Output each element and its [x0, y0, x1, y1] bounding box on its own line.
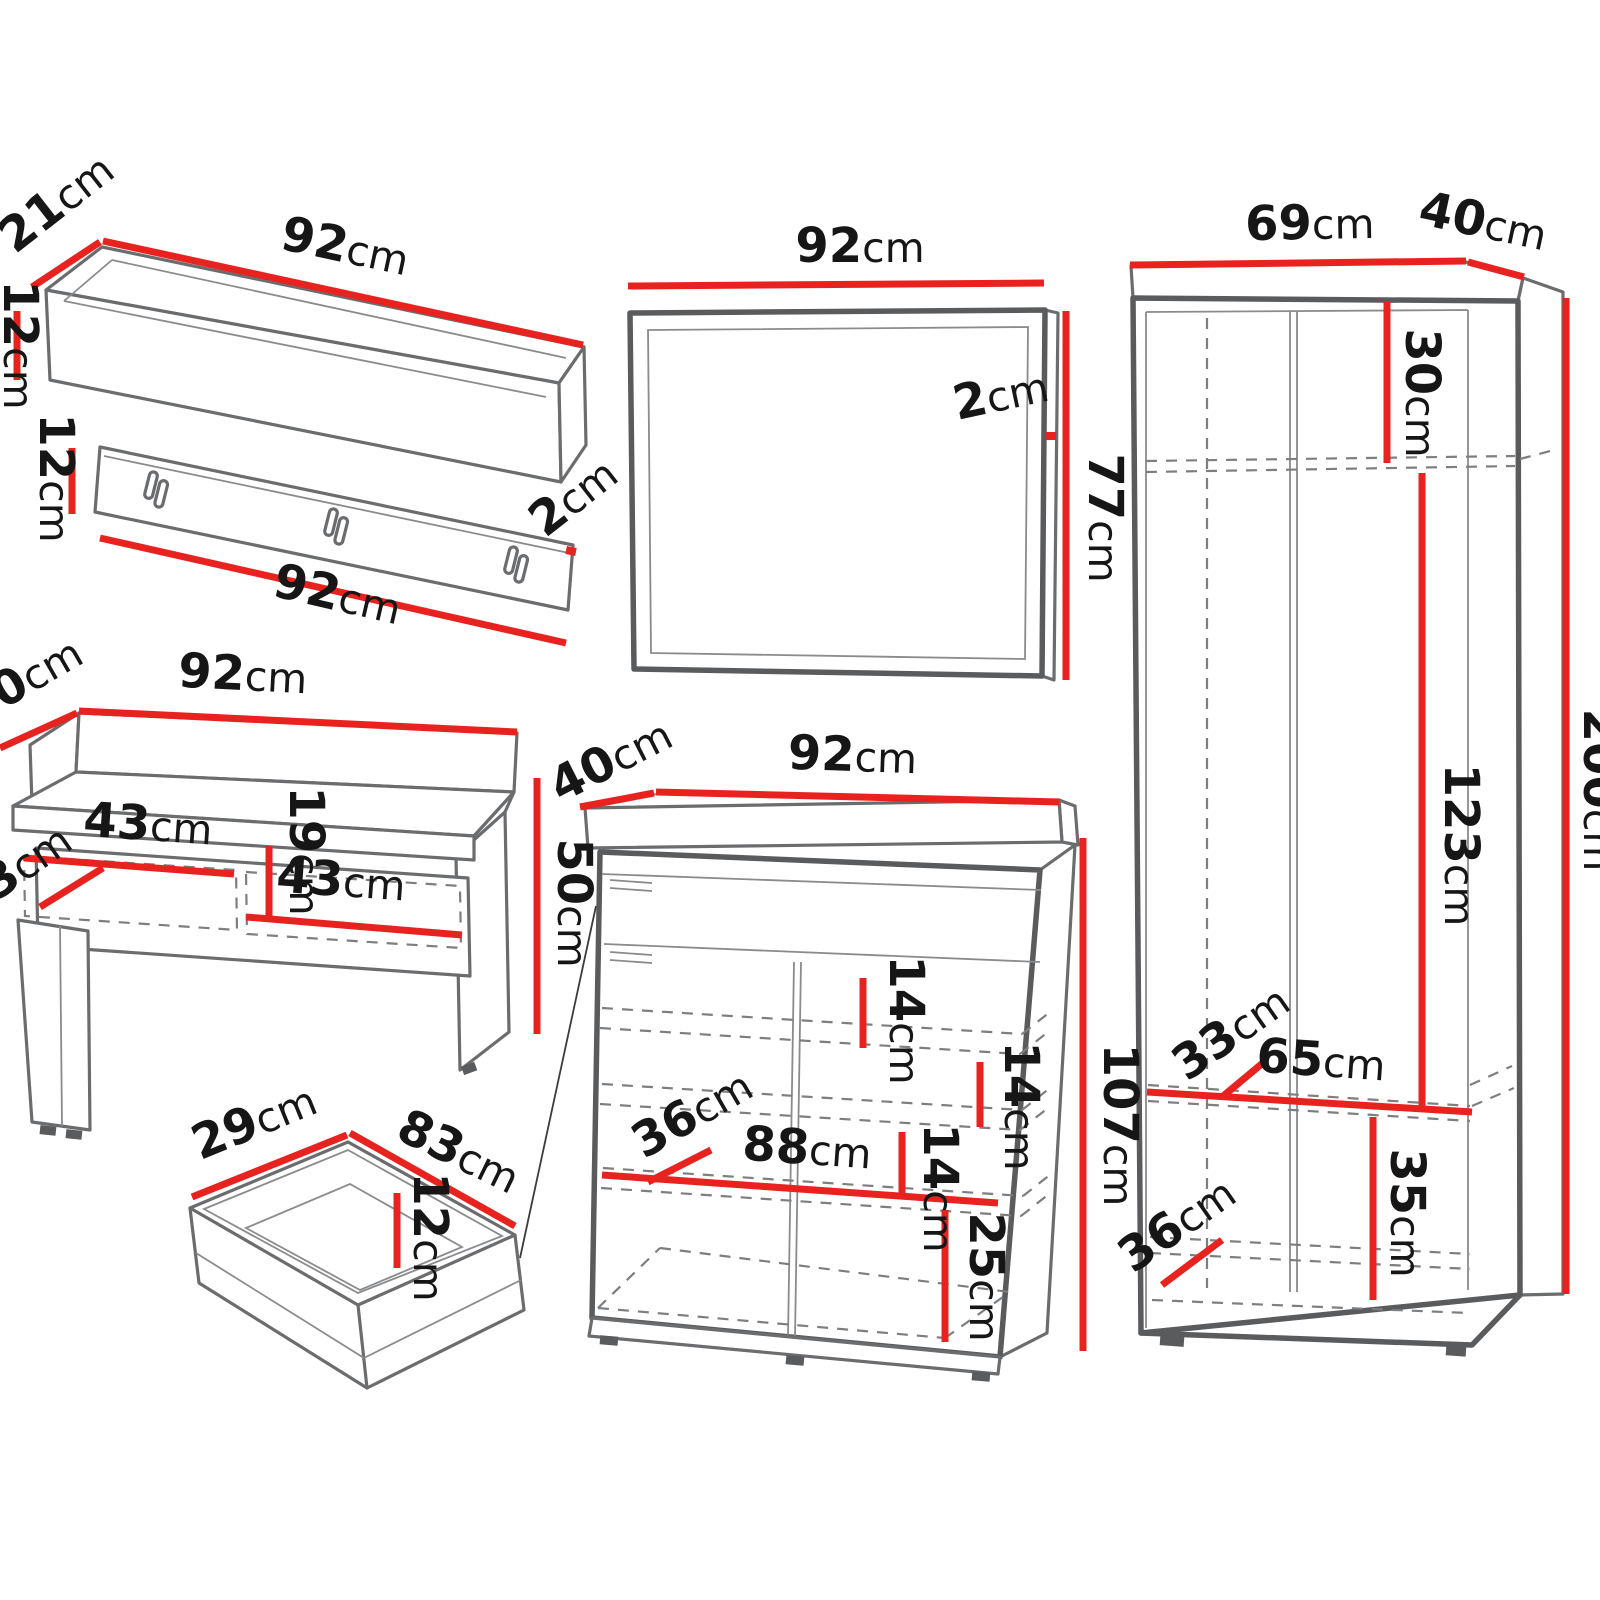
shoe-cabinet-upstand [585, 800, 1062, 848]
wardrobe-side-panel [1518, 278, 1563, 1295]
dim-label-shelf-height: 12cm [0, 280, 48, 409]
bench-foot [66, 1129, 83, 1140]
dim-label-wardrobe-hang: 123cm [1433, 764, 1489, 927]
dim-label-drawer-height: 12cm [402, 1172, 458, 1301]
dim-label-wardrobe-width: 69cm [1245, 194, 1375, 252]
bench-leg-left [18, 920, 90, 1130]
dim-tick-mirror-thickness [1046, 432, 1056, 440]
diagram-canvas: 21cm 92cm 12cm 12cm 92cm 2cm 92cm 2cm 77… [0, 0, 1600, 1600]
dim-label-wardrobe-depth: 40cm [1414, 181, 1552, 263]
shoe-cabinet-foot [972, 1371, 991, 1382]
dim-label-rack-height: 12cm [28, 413, 84, 542]
bench [0, 711, 537, 1140]
dim-label-bench-right-comp: 43cm [275, 848, 408, 913]
wall-shelf [17, 241, 586, 482]
wardrobe-foot [1160, 1335, 1185, 1347]
dim-label-shoe-bottom: 25cm [958, 1212, 1014, 1341]
dim-label-mirror-height: 77cm [1077, 453, 1133, 582]
bench-foot [40, 1125, 57, 1136]
dim-label-bench-width: 92cm [177, 643, 309, 706]
dim-line-wardrobe-width [1130, 261, 1466, 265]
dim-label-bench-height: 50cm [546, 838, 602, 967]
mirror [628, 283, 1066, 680]
dim-label-shelf-width: 92cm [276, 206, 414, 288]
dim-label-shoe-height: 107cm [1092, 1044, 1148, 1207]
dim-label-wardrobe-top: 30cm [1394, 328, 1450, 457]
dim-label-shoe-shelf-top: 14cm [878, 955, 934, 1084]
dim-line-shoe-width [656, 792, 1059, 802]
wardrobe-top-face [1131, 262, 1523, 301]
dim-label-mirror-width: 92cm [795, 218, 924, 274]
wardrobe-foot [1446, 1345, 1467, 1356]
shoe-cabinet-foot [600, 1335, 619, 1346]
dim-label-shelf-depth: 21cm [0, 141, 124, 265]
mirror-outer-frame [630, 310, 1045, 676]
dim-line-mirror-width [628, 283, 1044, 286]
dim-label-wardrobe-total: 200cm [1572, 709, 1600, 872]
shoe-cabinet-foot [786, 1355, 805, 1366]
dim-label-drawer-depth: 29cm [184, 1071, 325, 1171]
dim-label-wardrobe-bottom: 35cm [1379, 1148, 1435, 1277]
dim-label-shoe-shelf-mid: 14cm [993, 1041, 1049, 1170]
dim-label-shoe-width: 92cm [787, 725, 918, 785]
